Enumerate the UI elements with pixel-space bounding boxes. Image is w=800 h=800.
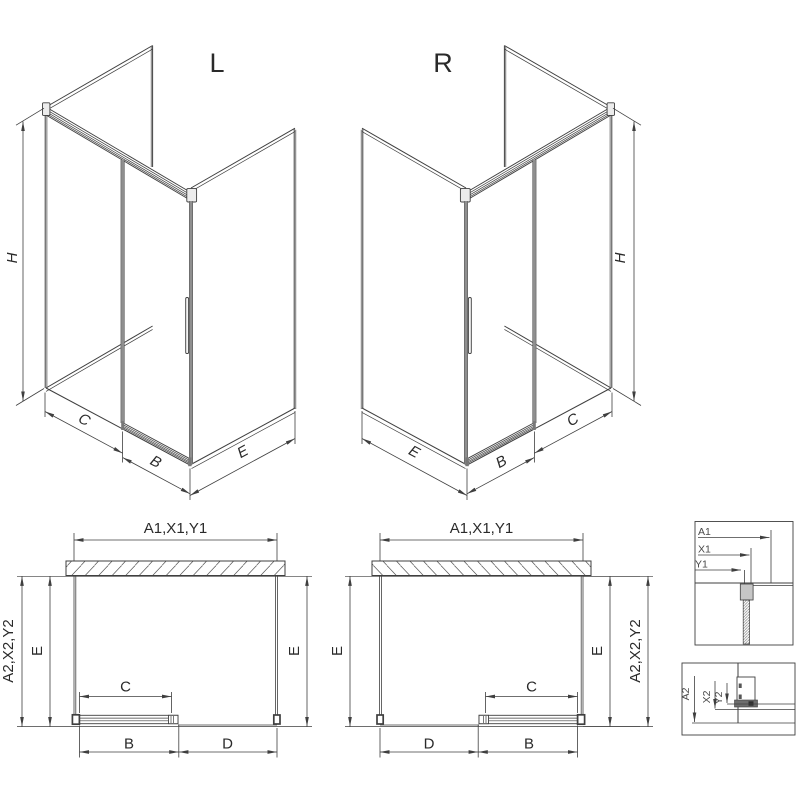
plan-right-dim-d: D (424, 736, 435, 753)
iso-view-left (16, 46, 296, 501)
detail-top-dim-x1: X1 (698, 544, 711, 556)
iso-left-dim-c: C (75, 410, 93, 430)
detail-bottom-dim-a2: A2 (680, 687, 692, 700)
plan-left-dim-c: C (120, 679, 131, 696)
bottom-profile-detail (682, 663, 795, 735)
iso-left-title: L (209, 48, 224, 78)
plan-right-dim-depth-outer: A2,X2,Y2 (627, 619, 644, 682)
iso-left-dim-b: B (147, 452, 164, 472)
plan-left-dim-b: B (124, 736, 134, 753)
technical-drawing-page: L H C B E R H C B E A1,X1,Y1 A2,X2,Y2 E … (0, 0, 800, 800)
detail-top-dim-a1: A1 (698, 526, 711, 538)
iso-right-dim-c: C (564, 410, 582, 430)
iso-right-title: R (433, 48, 453, 78)
plan-left-dim-width: A1,X1,Y1 (144, 520, 207, 537)
iso-right-dim-b: B (493, 452, 510, 472)
glass-section-hatched (743, 600, 749, 644)
plan-left-dim-e-left: E (29, 646, 46, 656)
iso-left-dim-e: E (234, 442, 252, 462)
wall-mount-profile (740, 584, 753, 600)
iso-left-dim-h: H (4, 252, 21, 263)
plan-view-left (17, 533, 312, 758)
plan-right-dim-b: B (524, 736, 534, 753)
shower-enclosure-drawing: L H C B E R H C B E A1,X1,Y1 A2,X2,Y2 E … (0, 0, 800, 800)
detail-bottom-dim-x2: X2 (701, 690, 713, 703)
plan-right-dim-e-left: E (329, 646, 346, 656)
iso-view-right (361, 46, 641, 501)
plan-left-dim-d: D (222, 736, 233, 753)
plan-right-dim-width: A1,X1,Y1 (450, 520, 513, 537)
plan-left-dim-depth-outer: A2,X2,Y2 (0, 619, 17, 682)
bottom-rail-profile (735, 700, 758, 707)
wall-profile-detail-top (695, 522, 793, 646)
iso-right-dim-e: E (406, 442, 424, 462)
plan-left-side-dims (22, 576, 307, 726)
plan-view-right (345, 533, 653, 758)
detail-bottom-dim-y2: Y2 (713, 691, 725, 704)
plan-right-dim-e-right: E (589, 646, 606, 656)
iso-right-dim-h: H (612, 252, 629, 263)
plan-left-dim-e-right: E (286, 646, 303, 656)
detail-top-dim-y1: Y1 (695, 559, 708, 571)
plan-right-dim-c: C (526, 679, 537, 696)
plan-right-side-dims (350, 576, 653, 726)
